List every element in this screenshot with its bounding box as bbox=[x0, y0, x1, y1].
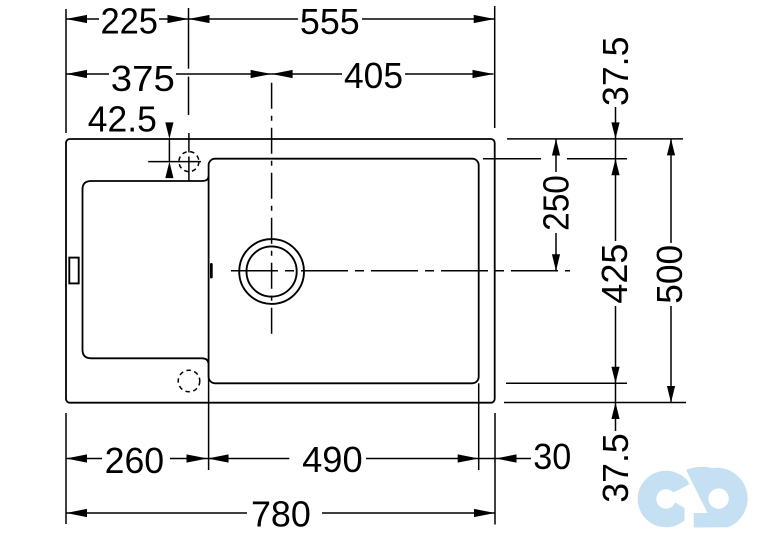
svg-text:30: 30 bbox=[533, 436, 571, 477]
svg-text:260: 260 bbox=[105, 440, 165, 481]
svg-text:37.5: 37.5 bbox=[595, 433, 636, 502]
svg-text:555: 555 bbox=[300, 1, 360, 42]
svg-text:250: 250 bbox=[536, 175, 577, 231]
svg-text:375: 375 bbox=[111, 58, 175, 99]
svg-text:37.5: 37.5 bbox=[595, 37, 636, 106]
svg-text:405: 405 bbox=[344, 55, 403, 96]
svg-text:425: 425 bbox=[594, 244, 635, 304]
svg-text:42.5: 42.5 bbox=[88, 98, 157, 139]
svg-text:490: 490 bbox=[302, 439, 363, 480]
svg-text:225: 225 bbox=[100, 1, 158, 42]
svg-text:500: 500 bbox=[649, 245, 690, 304]
svg-text:780: 780 bbox=[251, 494, 311, 535]
